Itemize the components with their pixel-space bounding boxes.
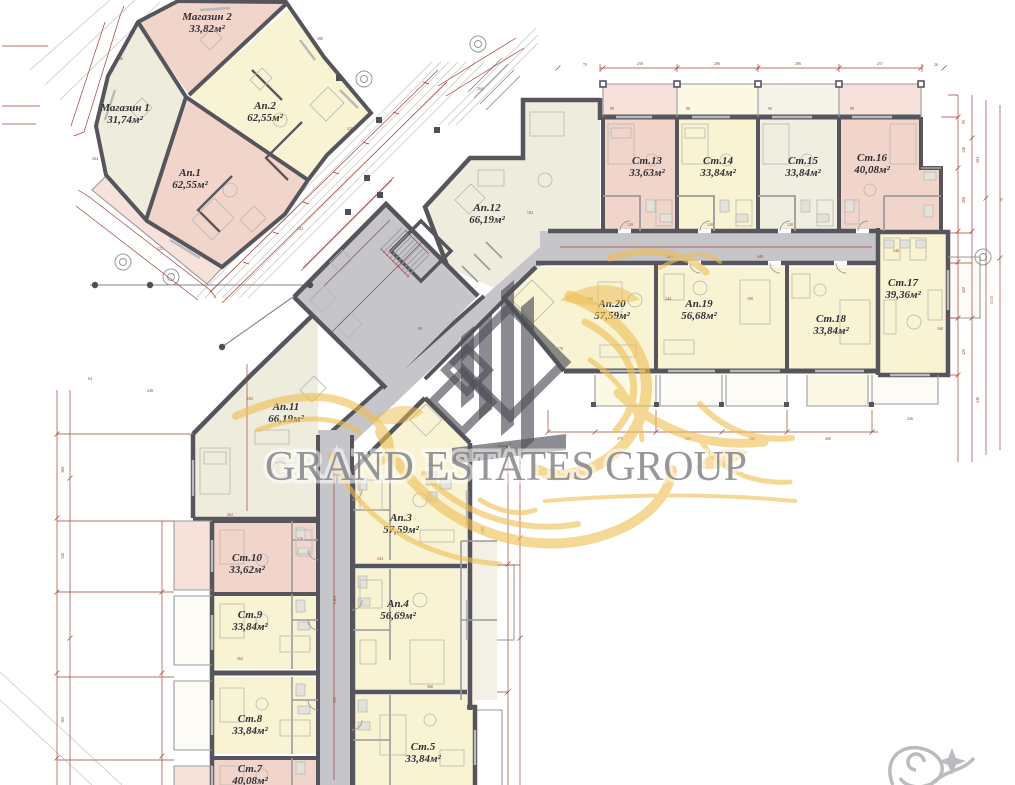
svg-text:246: 246 (893, 248, 899, 253)
svg-text:286: 286 (714, 61, 720, 66)
svg-text:62,55м²: 62,55м² (247, 112, 283, 124)
svg-text:26: 26 (934, 62, 938, 67)
svg-text:Ап.4: Ап.4 (386, 598, 409, 610)
svg-text:Ст.15: Ст.15 (788, 155, 818, 167)
svg-text:Ст.17: Ст.17 (888, 277, 918, 289)
svg-text:90: 90 (961, 120, 966, 124)
svg-text:56,68м²: 56,68м² (681, 310, 717, 322)
svg-text:Ст.18: Ст.18 (816, 313, 846, 325)
svg-text:Ап.2: Ап.2 (253, 100, 276, 112)
svg-text:Ст.9: Ст.9 (238, 609, 263, 621)
svg-text:346: 346 (961, 147, 966, 153)
svg-text:Магазин 1: Магазин 1 (99, 102, 149, 114)
svg-text:116: 116 (297, 536, 303, 541)
svg-text:90: 90 (686, 106, 690, 111)
svg-text:90: 90 (418, 326, 422, 331)
svg-text:40,08м²: 40,08м² (231, 775, 268, 785)
svg-text:248: 248 (147, 388, 153, 393)
svg-text:33,84м²: 33,84м² (231, 621, 268, 633)
svg-text:40,08м²: 40,08м² (853, 164, 890, 176)
svg-text:Ап.12: Ап.12 (472, 202, 501, 214)
svg-text:362: 362 (237, 656, 243, 661)
svg-text:39,36м²: 39,36м² (884, 289, 921, 301)
svg-text:66,19м²: 66,19м² (469, 214, 505, 226)
svg-text:142: 142 (297, 226, 303, 231)
svg-text:264: 264 (477, 86, 484, 91)
svg-text:160: 160 (937, 326, 943, 331)
svg-text:244: 244 (665, 296, 672, 301)
svg-text:360: 360 (60, 717, 65, 723)
svg-text:31,74м²: 31,74м² (106, 114, 143, 126)
svg-text:Ст.8: Ст.8 (238, 713, 263, 725)
svg-text:262: 262 (227, 512, 233, 517)
svg-text:56,69м²: 56,69м² (380, 610, 416, 622)
svg-text:1464: 1464 (332, 595, 337, 604)
svg-text:328: 328 (60, 553, 65, 559)
svg-text:Ст.16: Ст.16 (857, 152, 887, 164)
svg-text:182: 182 (527, 210, 533, 215)
svg-text:Ап.3: Ап.3 (389, 512, 412, 524)
svg-text:90: 90 (850, 106, 854, 111)
svg-text:33,84м²: 33,84м² (699, 167, 736, 179)
svg-text:286: 286 (795, 61, 801, 66)
svg-text:246: 246 (975, 397, 980, 403)
svg-text:33,63м²: 33,63м² (628, 167, 665, 179)
svg-text:180: 180 (747, 296, 753, 301)
svg-text:420: 420 (961, 287, 966, 293)
svg-text:120: 120 (707, 222, 713, 227)
svg-text:33,84м²: 33,84м² (812, 325, 849, 337)
svg-text:70: 70 (999, 198, 1004, 202)
svg-text:182: 182 (247, 396, 253, 401)
svg-text:33,84м²: 33,84м² (784, 167, 821, 179)
svg-text:380: 380 (317, 36, 323, 41)
svg-text:340: 340 (117, 56, 123, 61)
svg-text:257: 257 (877, 61, 883, 66)
svg-text:312: 312 (332, 697, 337, 703)
svg-text:Магазин 2: Магазин 2 (181, 11, 232, 23)
svg-text:62,55м²: 62,55м² (172, 179, 208, 191)
svg-text:33,84м²: 33,84м² (231, 725, 268, 737)
svg-text:220: 220 (347, 126, 353, 131)
svg-text:322: 322 (157, 246, 163, 251)
svg-text:264: 264 (92, 156, 99, 161)
svg-text:Ап.19: Ап.19 (684, 298, 713, 310)
svg-text:244: 244 (377, 556, 384, 561)
svg-text:Ст.7: Ст.7 (238, 763, 263, 775)
svg-text:90: 90 (610, 106, 614, 111)
svg-text:420: 420 (961, 349, 966, 355)
svg-text:1135: 1135 (989, 296, 994, 304)
svg-text:258: 258 (637, 61, 643, 66)
svg-text:Ст.10: Ст.10 (232, 552, 262, 564)
svg-text:33,62м²: 33,62м² (228, 564, 265, 576)
svg-text:Ст.5: Ст.5 (411, 741, 436, 753)
svg-text:Ап.1: Ап.1 (178, 167, 201, 179)
svg-text:368: 368 (60, 467, 65, 473)
svg-text:33,84м²: 33,84м² (404, 753, 441, 765)
svg-text:448: 448 (757, 254, 763, 259)
svg-text:120: 120 (627, 222, 633, 227)
svg-text:70: 70 (583, 62, 587, 67)
svg-text:120: 120 (787, 222, 793, 227)
svg-text:246: 246 (907, 416, 913, 421)
svg-text:Ст.13: Ст.13 (632, 155, 662, 167)
svg-text:Ст.14: Ст.14 (703, 155, 733, 167)
svg-text:33,82м²: 33,82м² (188, 23, 225, 35)
svg-text:460: 460 (825, 436, 831, 441)
svg-text:GRAND ESTATES GROUP: GRAND ESTATES GROUP (265, 444, 747, 490)
svg-text:584: 584 (975, 156, 980, 163)
svg-text:268: 268 (961, 197, 966, 203)
svg-text:90: 90 (768, 106, 772, 111)
svg-text:360: 360 (427, 684, 433, 689)
